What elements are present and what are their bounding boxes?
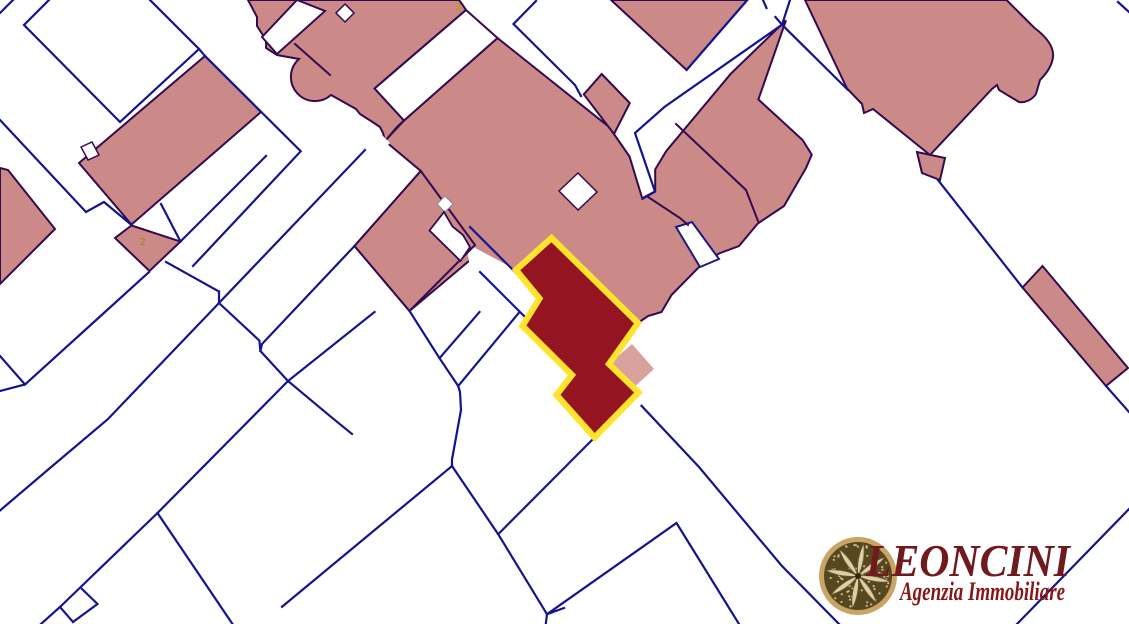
svg-text:2: 2: [140, 237, 146, 248]
svg-text:3: 3: [455, 1, 461, 13]
svg-text:Agenzia Immobiliare: Agenzia Immobiliare: [899, 577, 1065, 606]
